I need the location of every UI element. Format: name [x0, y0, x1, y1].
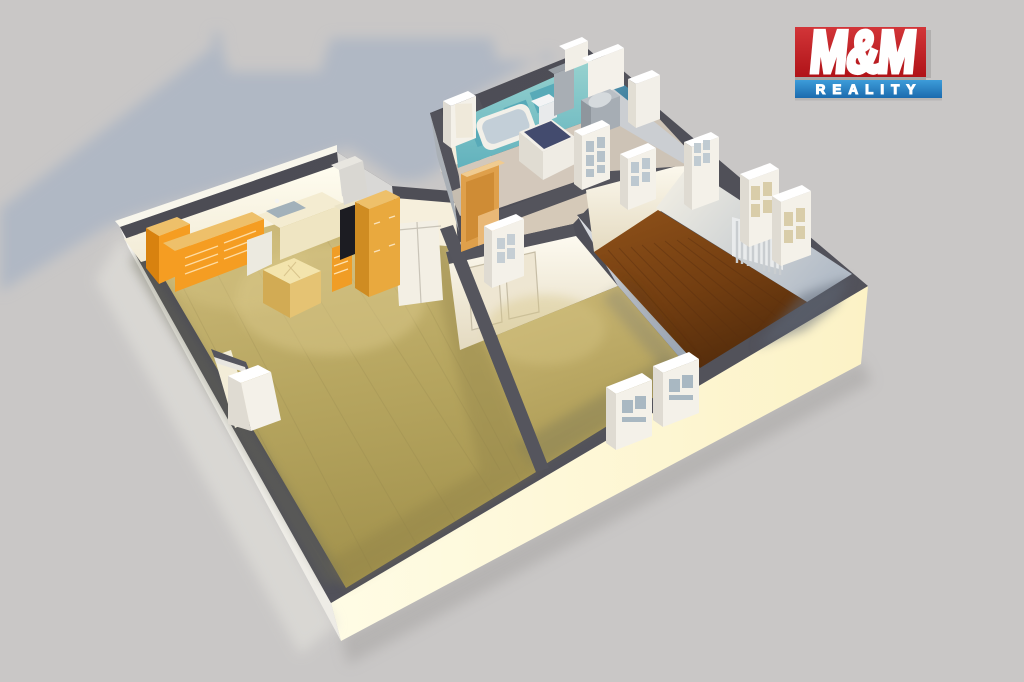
svg-text:M&M: M&M: [807, 19, 918, 85]
svg-text:REALITY: REALITY: [816, 82, 923, 97]
